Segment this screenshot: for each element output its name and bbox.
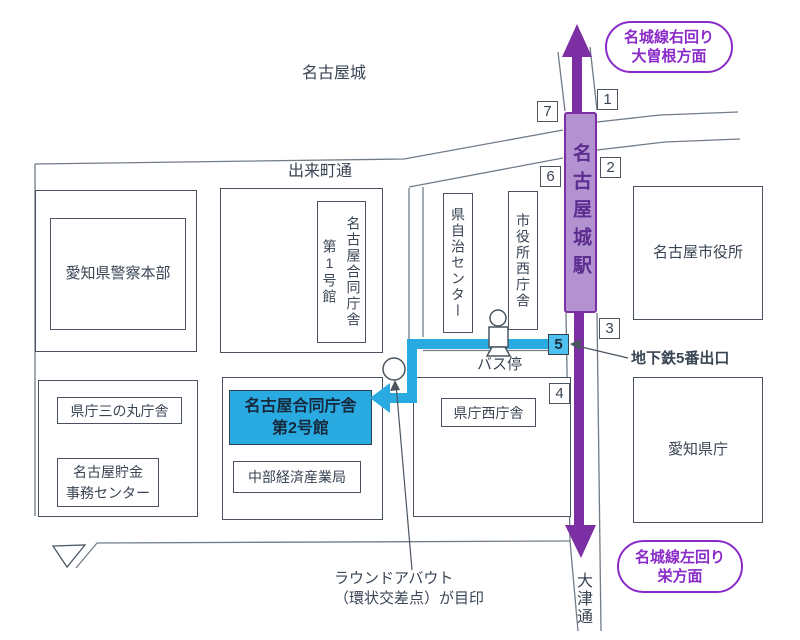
metro-arrow-up: [562, 24, 592, 57]
gov-bldg-2-destination: 名古屋合同庁舎 第2号館: [229, 390, 372, 445]
exit5-callout-line: [573, 345, 628, 358]
access-map: 愛知県警察本部 名古屋合同庁舎 第1号館 県自治センター 市役所西庁舎 名古屋市…: [0, 0, 800, 640]
sannomaru-annex: 県庁三の丸庁舎: [57, 397, 182, 424]
exit-6: 6: [540, 166, 561, 187]
subway-exit5-label: 地下鉄5番出口: [631, 349, 729, 369]
aichi-kencho: 愛知県庁: [633, 377, 763, 523]
bubble-south-text: 名城線左回り栄方面: [635, 548, 725, 586]
nagoya-castle-label: 名古屋城: [302, 64, 366, 84]
roundabout-note: ラウンドアバウト （環状交差点）が目印: [334, 569, 484, 609]
exit-7: 7: [537, 101, 558, 122]
roundabout-callout-line: [396, 384, 412, 570]
exit-4: 4: [549, 383, 570, 404]
exit-1: 1: [597, 89, 618, 110]
metro-arrow-down: [565, 525, 596, 558]
roundabout-circle: [383, 358, 405, 380]
dekimachi-street-label: 出来町通: [288, 162, 352, 182]
bubble-north-text: 名城線右回り大曽根方面: [624, 28, 714, 66]
exit-5: 5: [548, 334, 569, 355]
jichi-center: 県自治センター: [443, 193, 473, 333]
city-hall-west: 市役所西庁舎: [508, 191, 538, 330]
road-triangle-mark: [53, 545, 85, 567]
nagoyajo-station: 名古屋城駅: [564, 112, 597, 313]
exit-2: 2: [600, 157, 621, 178]
direction-bubble-south: 名城線左回り栄方面: [617, 540, 743, 593]
chubu-meti: 中部経済産業局: [233, 461, 361, 493]
exit-3: 3: [599, 318, 620, 339]
bus-stop-icon: [487, 310, 510, 356]
savings-center: 名古屋貯金 事務センター: [57, 458, 159, 507]
exit5-callout-arrowhead: [570, 339, 581, 350]
bus-stop-label: バス停: [477, 355, 522, 375]
roundabout-callout-arrowhead: [390, 380, 400, 391]
otsu-street-label: 大津通: [572, 572, 592, 634]
gov-bldg-1: 名古屋合同庁舎 第1号館: [317, 201, 366, 343]
kencho-west: 県庁西庁舎: [441, 398, 536, 427]
city-hall: 名古屋市役所: [633, 186, 763, 320]
police-hq: 愛知県警察本部: [50, 218, 186, 330]
direction-bubble-north: 名城線右回り大曽根方面: [605, 21, 733, 73]
